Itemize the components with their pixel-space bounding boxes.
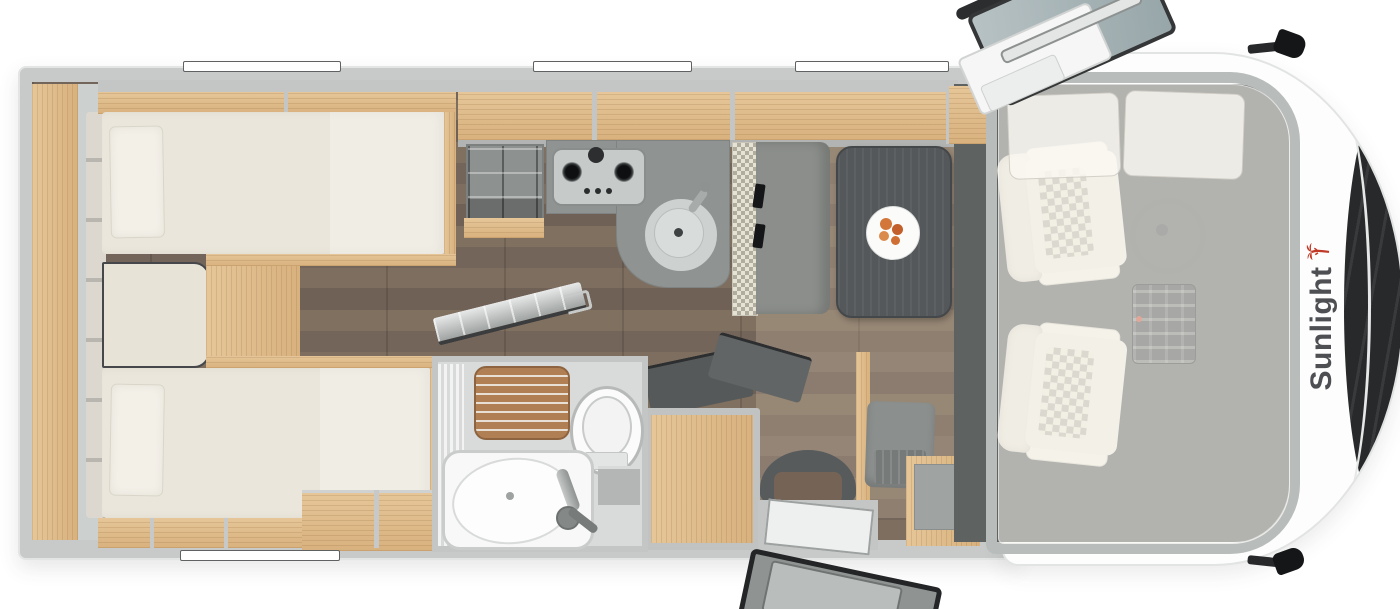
sink-faucet-head: [700, 182, 710, 192]
window-top-kitchen: [533, 61, 692, 72]
pillow-top-bed: [109, 126, 165, 239]
window-bottom-rear: [180, 550, 340, 561]
mid-platform-lower-lip: [206, 356, 456, 368]
fruit-1: [880, 218, 892, 230]
kitchen-dinette-overhead-locker: [458, 92, 956, 140]
hob-knob-2: [595, 188, 601, 194]
hob-burner-left: [562, 162, 582, 182]
mirror-head: [1272, 28, 1308, 61]
mid-platform-upper-lip: [206, 254, 456, 266]
dinette-bench-seat: [756, 142, 830, 314]
kitchen-shelf-base: [464, 218, 544, 238]
fruit-2: [892, 224, 903, 235]
wardrobe-top-face: [651, 415, 753, 543]
bench-divider-2: [224, 518, 228, 548]
sideboard-divider: [374, 490, 379, 548]
bench-divider-1: [150, 518, 154, 548]
brand-logo: Sunlight: [1300, 215, 1344, 415]
top-bed-foot-board: [444, 112, 456, 254]
hob-knob-1: [584, 188, 590, 194]
mirror-head: [1271, 545, 1307, 576]
bedroom-bottom-bench: [98, 518, 302, 548]
basin-drain: [506, 492, 514, 500]
fruit-3: [879, 231, 889, 241]
pillow-bottom-bed: [109, 384, 165, 497]
kitchen-locker-divider-1: [592, 92, 597, 140]
palm-icon: [1305, 240, 1331, 262]
motorhome-floorplan-top-view: Sunlight: [0, 0, 1400, 609]
bedroom-locker-divider: [284, 92, 288, 114]
single-bed-top-foot-light: [330, 112, 446, 254]
dropdown-bed-pillow-right: [1123, 90, 1246, 180]
rear-headboard-shelf: [32, 84, 78, 540]
kitchen-open-shelf-unit: [466, 144, 544, 224]
sink-drain: [674, 228, 683, 237]
mid-extension-cushion: [102, 262, 210, 368]
kitchen-locker-divider-2: [730, 92, 735, 140]
hob-burner-top: [588, 147, 604, 163]
bedroom-overhead-locker: [98, 92, 456, 114]
window-top-dinette: [795, 61, 949, 72]
overhead-locker-top-edge: [98, 80, 958, 92]
hob-knob-3: [606, 188, 612, 194]
brand-logo-text: Sunlight: [1305, 267, 1339, 391]
mid-step-platform: [206, 266, 300, 356]
window-top-rear: [183, 61, 341, 72]
fruit-4: [891, 236, 900, 245]
bathroom-corner-shelf: [598, 466, 640, 505]
bottom-sideboard: [302, 490, 432, 551]
hob-burner-right: [614, 162, 634, 182]
toilet-seat: [582, 396, 632, 458]
shower-wood-grate: [474, 366, 570, 440]
